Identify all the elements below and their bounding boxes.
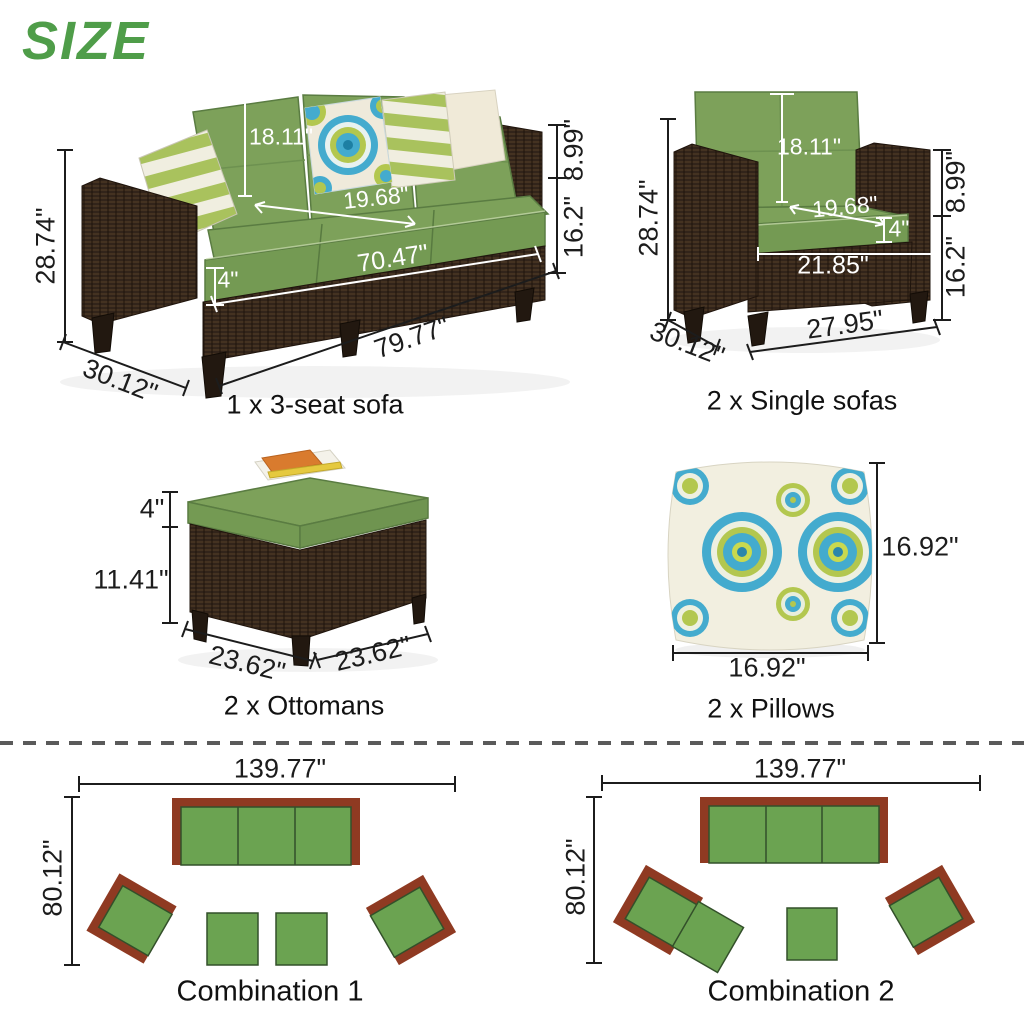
ottoman-illustration [60,440,520,730]
sofa-right-arm [495,124,542,252]
dim-ottoman-width: 23.62" [206,642,287,687]
single-sofa-illustration [600,60,1024,432]
chair-legs [684,291,928,346]
dim-single-overall-depth: 30.12" [646,318,728,371]
throw-pillow-striped-left [139,130,237,246]
plan-chair-right [885,865,975,955]
dim-ottoman-cushion-thickness: 4" [140,496,165,523]
dimension-lines-white [206,100,541,312]
caption-pillows: 2 x Pillows [707,696,835,723]
sofa-base [203,246,545,362]
dimension-lines-black [673,463,885,661]
chair-seat-cushion [704,206,908,254]
dim-pillow-height: 16.92" [881,534,958,561]
throw-pillow-medallion [298,93,398,200]
sofa-3seat-illustration [0,60,600,432]
dim-sofa3-back-cushion-height: 18.11" [249,126,313,149]
dim-single-seat-depth: 19.68" [811,193,878,222]
sofa-shadow [60,366,570,398]
ottoman-base [190,520,426,640]
plan-ottoman-center [787,908,837,960]
panel-combination-1: 139.77" 80.12" Combination 1 [0,0,1024,1024]
sofa-left-arm [82,178,197,324]
plan-sofa-top-view [700,797,888,863]
panel-3-seat-sofa: 28.74" 30.12" 79.77" 70.47" 4" 18.11" 19… [0,0,1024,1024]
dim-sofa3-seat-depth: 19.68" [342,183,410,213]
chair-base [748,242,912,312]
caption-combination-2: Combination 2 [708,978,895,1007]
dim-single-arm-to-seat: 8.99" [943,151,970,213]
dim-combo1-depth: 80.12" [40,839,67,916]
dim-combo1-width: 139.77" [234,756,326,783]
dim-combo2-depth: 80.12" [563,838,590,915]
chair-shadow [670,327,940,353]
pillow-illustration [620,440,1024,730]
throw-pillow-cream [440,90,505,170]
dim-sofa3-seat-to-ground: 16.2" [561,196,588,258]
sofa-back-cushions [193,95,517,233]
plan-sofa-top-view [172,798,360,865]
pillow-medallion-pattern [671,467,878,637]
dim-sofa3-overall-height: 28.74" [33,207,60,284]
combination1-top-view [0,750,520,1024]
plan-ottoman-attached [672,901,743,972]
panel-pillow: 16.92" 16.92" 2 x Pillows [0,0,1024,1024]
ottoman-legs [192,594,426,666]
panel-single-sofa: 28.74" 30.12" 27.95" 18.11" 19.68" 4" 21… [0,0,1024,1024]
panel-ottoman: 4" 11.41" 23.62" 23.62" 2 x Ottomans [0,0,1024,1024]
chair-back-cushion [695,92,862,208]
dim-sofa3-cushion-thickness: 4" [218,269,239,292]
dimension-lines-black [64,776,455,965]
ottoman-shadow [178,648,438,672]
plan-chair-left [86,873,176,963]
size-chart-page: SIZE [0,0,1024,1024]
dimension-lines-black [660,119,951,360]
page-title: SIZE [22,10,150,72]
dim-single-seat-width: 21.85" [797,254,868,279]
dim-sofa3-overall-width: 79.77" [371,313,453,364]
dim-sofa3-seat-width: 70.47" [356,241,430,277]
dim-single-overall-width: 27.95" [805,306,885,343]
caption-single-sofas: 2 x Single sofas [707,388,898,415]
dim-sofa3-arm-to-seat: 8.99" [561,119,588,181]
dashed-divider [0,741,1024,745]
panel-combination-2: 139.77" 80.12" Combination 2 [0,0,1024,1024]
ottoman-magazines [255,450,345,480]
dimension-lines-black [586,775,980,963]
dimension-lines-white [758,94,932,261]
dim-ottoman-base-height: 11.41" [93,567,168,594]
caption-3-seat-sofa: 1 x 3-seat sofa [226,392,403,419]
chair-left-arm [674,144,758,318]
dim-pillow-width: 16.92" [728,655,805,682]
dim-ottoman-depth: 23.62" [332,632,413,676]
dim-combo2-width: 139.77" [754,756,846,783]
caption-ottomans: 2 x Ottomans [224,693,385,720]
dimension-lines-black [57,125,566,396]
pillow-fabric [668,462,872,650]
caption-combination-1: Combination 1 [177,978,364,1007]
dim-single-seat-to-ground: 16.2" [943,236,970,298]
chair-right-arm [856,143,930,306]
plan-ottoman-right [276,913,327,965]
dim-single-back-cushion-height: 18.11" [777,136,841,159]
plan-ottoman-left [207,913,258,965]
dim-single-cushion-thickness: 4" [889,218,910,241]
dim-single-overall-height: 28.74" [636,179,663,256]
dimension-lines-black [162,492,431,669]
throw-pillow-striped-right [382,92,455,188]
sofa-seat-cushions [205,196,548,302]
pillow-shadow [675,642,865,658]
plan-chair-left [613,865,703,955]
sofa-legs [92,288,534,398]
plan-chair-right [366,875,456,965]
dim-sofa3-overall-depth: 30.12" [79,355,161,408]
ottoman-cushion [188,478,428,548]
combination2-top-view [520,750,1024,1024]
